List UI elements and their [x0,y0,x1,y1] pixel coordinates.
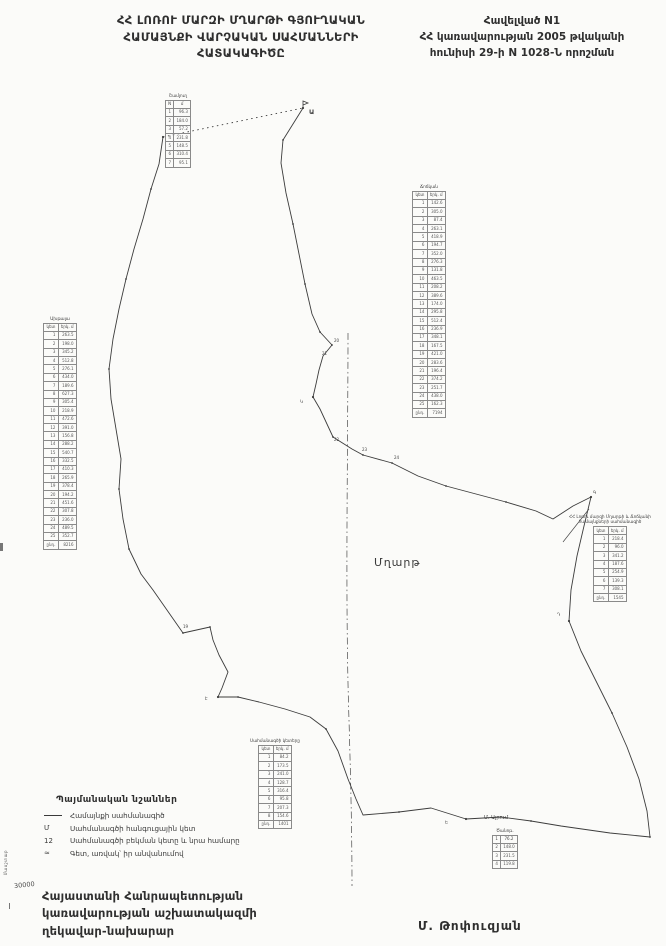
coord-table-west: Ախթալա կետերկ. մ1263.52198.03345.24512.8… [34,316,86,550]
scan-artifact [9,903,10,909]
signatory-title-block: Հայաստանի Հանրապետության կառավարության ա… [42,888,257,940]
point-label-d: Դ [557,612,560,617]
community-boundary-line [109,108,650,837]
break-point-icon: 12 [44,837,70,845]
coord-table-midright-title: ՀՀ Լոռու մարզի Մղարթի և Ճոճկանի համայնքն… [558,514,662,525]
coord-table-east-title: Ճոճկան [402,184,456,189]
coord-table-south-title: Սահմանագծի կետերը [246,738,304,743]
scale-label-vertical: Մասշտաբ [3,850,8,875]
point-number-19: 19 [183,624,188,629]
scan-artifact [0,543,3,551]
legend-item-boundary: Համայնքի սահմանագիծ [44,811,240,820]
signatory-line-2: կառավարության աշխատակազմի [42,905,257,922]
legend-item-river: ≈ Գետ, առվակ՝ իր անվանումով [44,849,240,858]
legend-item-break-point-label: Սահմանագծի բեկման կետը և նրա համարը [70,836,240,845]
point-label-e: Ե [445,820,448,825]
signatory-line-3: ղեկավար-նախարար [42,923,257,940]
point-label-ee: Է [205,696,208,701]
point-number-20: 20 [334,338,339,343]
legend-item-river-label: Գետ, առվակ՝ իր անվանումով [70,849,184,858]
legend-item-boundary-label: Համայնքի սահմանագիծ [70,811,165,820]
coord-table-midright-title-2: համայնքների սահմանագիծ [558,519,662,524]
legend-item-node-point: Մ Սահմանագծի հանգուցային կետ [44,824,240,833]
point-number-24: 24 [394,455,399,460]
signatory-name: Մ. Թոփուզյան [418,919,522,933]
coord-table-midright-grid: կետերկ. մ1218.4296.03341.24187.65254.961… [558,526,662,602]
point-number-23: 23 [362,447,367,452]
point-label-g: Գ [593,490,596,495]
coord-table-midright: ՀՀ Լոռու մարզի Մղարթի և Ճոճկանի համայնքն… [558,514,662,602]
coord-table-south: Սահմանագծի կետերը կետերկ. մ184.22173.532… [246,738,304,829]
legend-item-break-point: 12 Սահմանագծի բեկման կետը և նրա համարը [44,836,240,845]
coord-table-south-grid: կետերկ. մ184.22173.53241.04128.75316.469… [246,745,304,830]
coord-table-west-grid: կետերկ. մ1263.52198.03345.24512.85276.16… [34,323,86,550]
point-number-22: 22 [334,437,339,442]
signatory-line-1: Հայաստանի Հանրապետության [42,888,257,905]
neighbor-name-label: Մ. Այրում [484,815,508,821]
coord-table-north-title: Շամլուղ [148,93,208,98]
boundary-vertex-dots [108,107,651,838]
coord-table-west-title: Ախթալա [34,316,86,321]
boundary-line-icon [44,812,70,820]
north-node-flag-icon [303,101,308,108]
coord-table-north: Շամլուղ Nմ196.32184.0357.24231.85148.563… [148,93,208,168]
scanned-map-sheet: ՀՀ ԼՈՌՈՒ ՄԱՐԶԻ ՄՂԱՐԹԻ ԳՅՈՒՂԱԿԱՆ ՀԱՄԱՅՆՔԻ… [0,0,666,946]
point-label-a: Ա [309,108,314,116]
river-dashdot-line [347,333,352,886]
coord-table-east-grid: կետերկ. մ1142.62305.0387.44263.15418.961… [402,191,456,418]
map-legend: Պայմանական նշաններ Համայնքի սահմանագիծ Մ… [44,795,240,861]
legend-item-node-point-label: Սահմանագծի հանգուցային կետ [70,824,196,833]
node-point-icon: Մ [44,824,70,832]
coord-table-north-grid: Nմ196.32184.0357.24231.85148.56310.4795.… [148,100,208,168]
coord-table-southeast-grid: 176.22148.03231.54119.8 [478,835,532,870]
village-name-label: Մղարթ [374,556,421,569]
coord-table-southeast-title: Ծանոթ. [478,828,532,833]
legend-title: Պայմանական նշաններ [56,795,240,805]
point-number-21: 21 [322,351,327,356]
coord-table-southeast: Ծանոթ. 176.22148.03231.54119.8 [478,828,532,869]
coord-table-east: Ճոճկան կետերկ. մ1142.62305.0387.44263.15… [402,184,456,418]
point-label-k: Կ [300,399,303,404]
river-icon: ≈ [44,849,70,857]
